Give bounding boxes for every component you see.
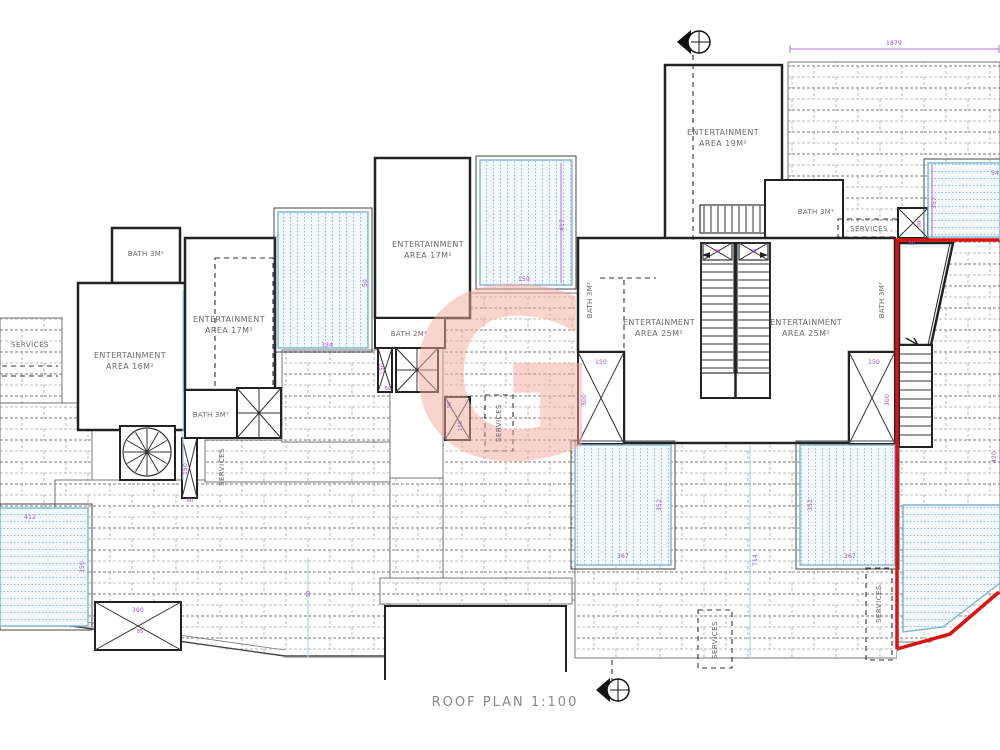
- dim-pool-mid-height: 417: [559, 219, 566, 231]
- label-services-left-vertical: SERVICES: [218, 448, 226, 486]
- deck-mid-left: [205, 440, 390, 482]
- dim-box-mid-b: 150: [458, 421, 464, 431]
- deck-under-pool1: [282, 350, 390, 442]
- deck-bridge: [380, 578, 572, 604]
- label-bath-25-left: BATH 3M²: [586, 282, 594, 319]
- dim-skylight-left-width: 150: [595, 359, 607, 366]
- label-services-left: SERVICES: [11, 341, 49, 349]
- deck-left-strip: [0, 318, 62, 403]
- label-entertainment-25L-line2: AREA 25M²: [635, 329, 683, 338]
- pool-b2: [800, 445, 895, 565]
- plan-title: ROOF PLAN 1:100: [432, 695, 579, 710]
- dim-skylight-right-height: 300: [884, 394, 891, 406]
- pool-top-right: [928, 163, 1000, 237]
- right-stair: [899, 345, 932, 447]
- label-entertainment-17L-line2: AREA 17M²: [205, 326, 253, 335]
- label-services-middle: SERVICES: [495, 404, 503, 442]
- dim-pool-b2-width: 367: [844, 553, 856, 560]
- label-entertainment-19-line1: ENTERTAINMENT: [687, 128, 759, 137]
- dim-shaft-mid-width: 60: [385, 386, 392, 392]
- dim-pool-right-height: 420: [991, 451, 998, 463]
- floor-plan-canvas: G ENTERTAINMENT AREA 16M² ENTERTAINMENT …: [0, 0, 1000, 750]
- dim-deck-height: 714: [752, 554, 759, 566]
- dim-pool-b1-width: 367: [617, 553, 629, 560]
- dim-shaft-mid-height: 150: [379, 363, 386, 375]
- label-bath-middle: BATH 2M²: [391, 330, 428, 338]
- label-entertainment-16-line1: ENTERTAINMENT: [94, 351, 166, 360]
- dim-box-tr-width: 60: [909, 241, 916, 247]
- label-entertainment-16-line2: AREA 16M²: [106, 362, 154, 371]
- dim-pool-bl-height: 350: [79, 561, 86, 573]
- section-marker-top: [677, 30, 710, 54]
- dim-skylight-left-height: 300: [581, 394, 588, 406]
- label-services-top-right: SERVICES: [850, 225, 888, 233]
- dim-skylight-right-width: 150: [868, 359, 880, 366]
- dim-pool-left-width: 334: [321, 342, 333, 349]
- label-entertainment-25R-line2: AREA 25M²: [782, 329, 830, 338]
- label-bath-25-right: BATH 3M²: [878, 282, 886, 319]
- label-entertainment-17M-line2: AREA 17M²: [404, 251, 452, 260]
- dim-deck-line: 30: [306, 591, 312, 598]
- dim-box-bl-height: 85: [137, 629, 144, 635]
- dim-pool-tr-height: 357: [931, 197, 938, 209]
- label-entertainment-17L-line1: ENTERTAINMENT: [193, 315, 265, 324]
- pool-left: [278, 212, 368, 348]
- label-bath-top-left: BATH 3M²: [128, 250, 165, 258]
- dim-top-width: 1879: [886, 40, 902, 47]
- label-services-right: SERVICES: [875, 585, 883, 623]
- dim-stairbox-right: 90: [750, 249, 757, 255]
- dim-shaft-left-width: 60: [187, 498, 194, 504]
- dim-box-bl-width: 360: [132, 607, 144, 614]
- label-entertainment-25R-line1: ENTERTAINMENT: [770, 318, 842, 327]
- dim-box-mid-a: 90: [447, 402, 453, 409]
- label-entertainment-25L-line1: ENTERTAINMENT: [623, 318, 695, 327]
- pool-bottom-left: [0, 508, 88, 626]
- dim-pool-b2-height: 352: [807, 499, 814, 511]
- roof-plan-drawing: G ENTERTAINMENT AREA 16M² ENTERTAINMENT …: [0, 0, 1000, 750]
- section-marker-bottom: [596, 678, 629, 702]
- label-entertainment-19-line2: AREA 19M²: [699, 139, 747, 148]
- dim-pool-tr-width: 54: [991, 170, 999, 177]
- dim-box-tr-height: 90: [917, 221, 923, 228]
- unit-25-twins: [578, 238, 895, 444]
- dim-pool-b1-height: 352: [656, 499, 663, 511]
- dim-pool-bl-width: 412: [24, 514, 36, 521]
- dim-shaft-left-height: 150: [182, 463, 189, 475]
- label-services-bottom: SERVICES: [711, 621, 719, 659]
- dim-stairbox-left: 90: [714, 249, 721, 255]
- label-bath-top-right: BATH 3M²: [798, 208, 835, 216]
- label-bath-left-lower: BATH 3M²: [193, 411, 230, 419]
- dim-pool-left-height: 50: [362, 279, 369, 287]
- recess-outline: [385, 606, 566, 680]
- watermark-logo: G: [407, 241, 600, 514]
- dim-pool-mid-width: 159: [518, 276, 530, 283]
- label-entertainment-17M-line1: ENTERTAINMENT: [392, 240, 464, 249]
- room-entertainment-17-left: [185, 238, 275, 390]
- winder-stair-left-treads: [237, 388, 281, 438]
